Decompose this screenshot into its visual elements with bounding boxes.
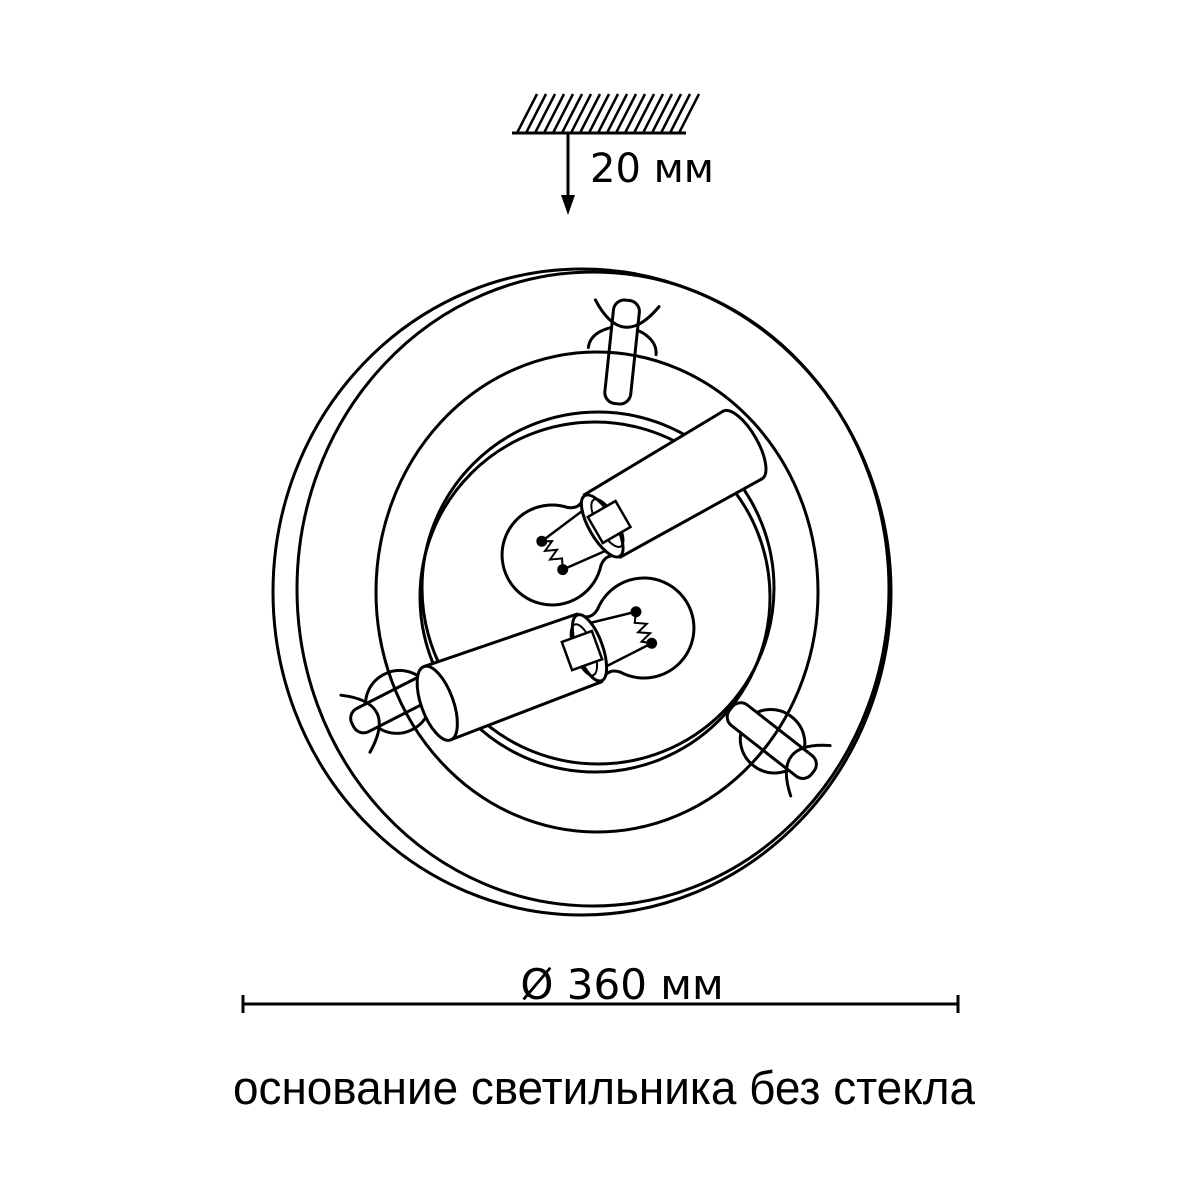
offset-dimension-label: 20 мм [590,146,714,192]
drawing-caption: основание светильника без стекла [233,1061,976,1114]
lamp-base-diagram: 20 мм [0,0,1200,1200]
technical-drawing-page: 20 мм [0,0,1200,1200]
diameter-dimension-label: Ø 360 мм [520,960,723,1009]
